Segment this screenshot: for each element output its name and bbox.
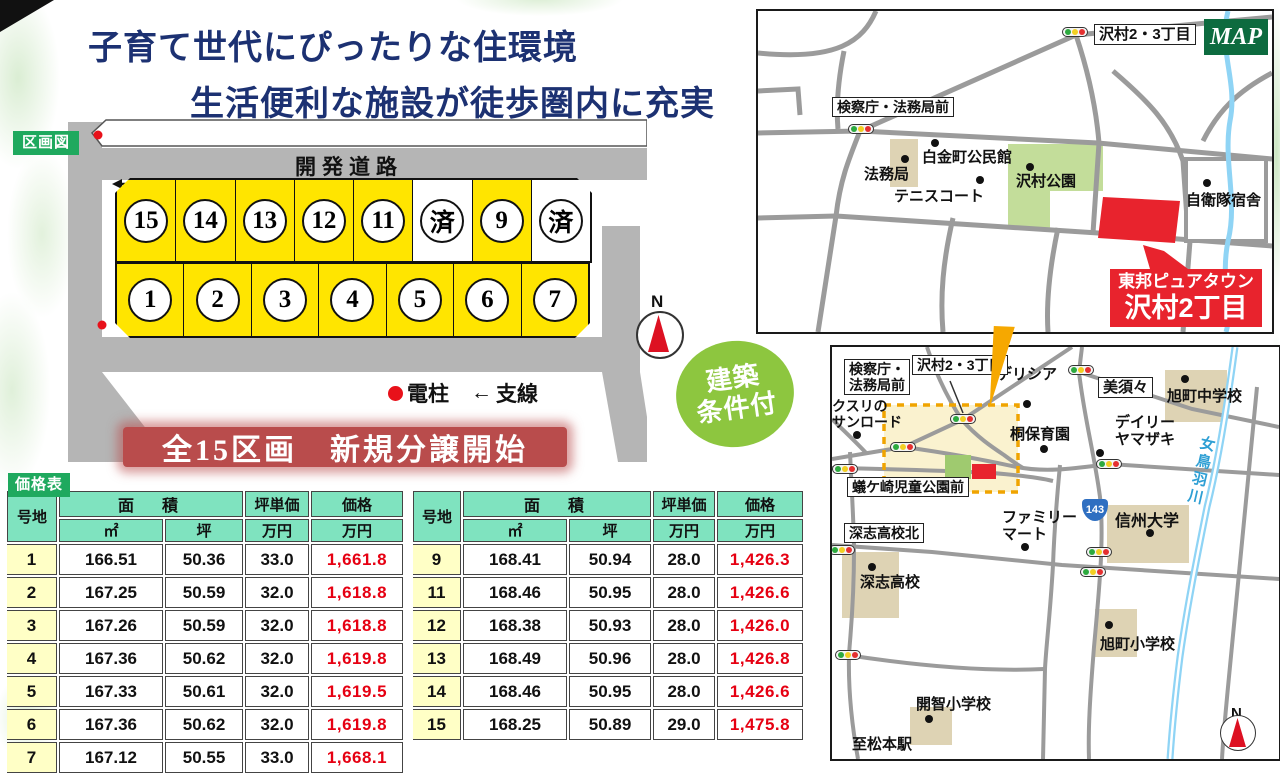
cell-price: 1,668.1: [311, 742, 403, 773]
header-man-yen: 万円: [717, 519, 803, 542]
lot-row-bottom: 1 2 3 4 5 6 7: [115, 262, 590, 338]
lot-number: 13: [243, 199, 287, 243]
cell-tsubo: 50.96: [569, 643, 651, 674]
header-tsubo: 坪: [165, 519, 243, 542]
cell-sqm: 168.25: [463, 709, 567, 740]
sale-banner-text: 全15区画 新規分譲開始: [162, 425, 528, 469]
cell-lot: 2: [7, 577, 57, 608]
header-row-2: ㎡ 坪 万円 万円: [413, 519, 803, 542]
cell-lot: 1: [7, 544, 57, 575]
cell-lot: 7: [7, 742, 57, 773]
cell-sqm: 167.25: [59, 577, 163, 608]
cell-lot: 15: [413, 709, 461, 740]
plot-compass-n: N: [651, 292, 663, 312]
price-row: 3167.2650.5932.01,618.8: [7, 610, 403, 641]
cell-tsubo: 50.36: [165, 544, 243, 575]
lot-number: 6: [465, 278, 509, 322]
lot-11: 11: [353, 180, 412, 261]
traffic-light-icon: [1068, 365, 1094, 375]
map-badge: MAP: [1204, 19, 1268, 55]
cell-tsubo: 50.93: [569, 610, 651, 641]
cell-unit: 32.0: [245, 709, 309, 740]
poi-label-kiri: 桐保育園: [1010, 427, 1070, 444]
lot-14: 14: [175, 180, 234, 261]
cell-sqm: 167.36: [59, 643, 163, 674]
poi-label-family-l1: ファミリー: [1002, 510, 1077, 527]
poi-dot: [1203, 179, 1211, 187]
site-banner-line1: 東邦ピュアタウン: [1118, 272, 1254, 292]
lot-12: 12: [294, 180, 353, 261]
cell-unit: 32.0: [245, 643, 309, 674]
poi-dot: [976, 176, 984, 184]
poi-label-daily-l1: デイリー: [1115, 415, 1175, 432]
utility-pole-dot: [94, 131, 103, 140]
poi-dot: [853, 431, 861, 439]
road-right: [602, 226, 640, 372]
lot-1: 1: [117, 264, 183, 336]
price-row: 9168.4150.9428.01,426.3: [413, 544, 803, 575]
lot-5: 5: [386, 264, 453, 336]
plot-map-badge: 区画図: [13, 131, 79, 155]
traffic-light-icon: [835, 650, 861, 660]
signal-label-kensatsu: 検察庁・法務局前: [832, 97, 954, 117]
header-unit-price: 坪単価: [653, 491, 715, 517]
cell-price: 1,426.3: [717, 544, 803, 575]
cell-unit: 28.0: [653, 676, 715, 707]
cell-price: 1,426.6: [717, 577, 803, 608]
poi-label-homukyoku: 法務局: [864, 167, 909, 184]
cell-lot: 9: [413, 544, 461, 575]
poi-label-park: 沢村公園: [1016, 174, 1076, 191]
header-sqm: ㎡: [463, 519, 567, 542]
cell-lot: 3: [7, 610, 57, 641]
box-label-misuzu: 美須々: [1098, 377, 1153, 398]
cell-price: 1,475.8: [717, 709, 803, 740]
road-bottom-right: [602, 372, 647, 462]
cell-price: 1,426.6: [717, 676, 803, 707]
box-label-arigasaki: 蟻ケ崎児童公園前: [847, 477, 969, 497]
cell-lot: 4: [7, 643, 57, 674]
lot-4: 4: [318, 264, 385, 336]
cell-lot: 13: [413, 643, 461, 674]
header-man-yen: 万円: [245, 519, 309, 542]
poi-dot: [901, 155, 909, 163]
utility-pole-dot: [98, 321, 107, 330]
cell-unit: 28.0: [653, 577, 715, 608]
poi-dot: [1023, 400, 1031, 408]
poi-dot: [1040, 445, 1048, 453]
cell-tsubo: 50.95: [569, 577, 651, 608]
price-row: 11168.4650.9528.01,426.6: [413, 577, 803, 608]
lot-sold-mark: 済: [420, 199, 464, 243]
cell-price: 1,661.8: [311, 544, 403, 575]
cell-unit: 33.0: [245, 742, 309, 773]
cell-unit: 28.0: [653, 610, 715, 641]
traffic-light-icon: [1062, 27, 1088, 37]
cell-lot: 6: [7, 709, 57, 740]
lot-number: 2: [196, 278, 240, 322]
cell-tsubo: 50.61: [165, 676, 243, 707]
poi-label-daily-l2: ヤマザキ: [1115, 432, 1175, 449]
legend-wire-label: 支線: [496, 378, 538, 408]
site-pointer: [1143, 245, 1188, 269]
lot-9: 9: [472, 180, 531, 261]
page-title-line1: 子育て世代にぴったりな住環境: [88, 20, 578, 69]
poi-label-matsumoto: 至松本駅: [852, 737, 912, 754]
header-area: 面 積: [59, 491, 243, 517]
lot-sold-mark: 済: [539, 199, 583, 243]
lot-number: 15: [124, 199, 168, 243]
cell-price: 1,618.8: [311, 577, 403, 608]
lot-number: 3: [263, 278, 307, 322]
lot-number: 5: [398, 278, 442, 322]
lot-number: 7: [533, 278, 577, 322]
poi-label-asahi-es: 旭町小学校: [1100, 637, 1175, 654]
poi-label-tennis: テニスコート: [894, 189, 984, 206]
cell-tsubo: 50.55: [165, 742, 243, 773]
wide-area-map: MAP 沢村2・3丁目 検察庁・法務局前 法務局 白金町公民館 テニスコート 沢…: [756, 9, 1274, 334]
cell-sqm: 168.41: [463, 544, 567, 575]
price-row: 4167.3650.6232.01,619.8: [7, 643, 403, 674]
price-table-right: 号地 面 積 坪単価 価格 ㎡ 坪 万円 万円 9168.4150.9428.0…: [411, 489, 805, 742]
box-label-fukashi-kita: 深志高校北: [844, 523, 924, 543]
zone-site-area: [972, 464, 996, 479]
poi-label-jieitai: 自衛隊宿舎: [1186, 193, 1261, 210]
cell-tsubo: 50.94: [569, 544, 651, 575]
cell-unit: 33.0: [245, 544, 309, 575]
cell-price: 1,619.8: [311, 643, 403, 674]
lot-row-top: 15 14 13 12 11 済 9 済: [115, 178, 592, 263]
lot-8-sold: 済: [531, 180, 590, 261]
cell-sqm: 166.51: [59, 544, 163, 575]
sale-banner: 全15区画 新規分譲開始: [123, 427, 567, 467]
site-banner: 東邦ピュアタウン 沢村2丁目: [1110, 269, 1262, 327]
cell-sqm: 167.36: [59, 709, 163, 740]
header-sqm: ㎡: [59, 519, 163, 542]
zone-green-area: [945, 455, 971, 479]
corner-triangle: [0, 0, 54, 32]
poi-label-kominkan: 白金町公民館: [922, 150, 1012, 167]
poi-label-kusuri-l2: サンロード: [832, 415, 902, 431]
price-row: 7167.1250.5533.01,668.1: [7, 742, 403, 773]
cell-sqm: 167.33: [59, 676, 163, 707]
header-price: 価格: [717, 491, 803, 517]
cell-unit: 32.0: [245, 676, 309, 707]
cell-lot: 12: [413, 610, 461, 641]
poi-label-kusuri: クスリの サンロード: [832, 399, 902, 430]
lot-number: 11: [361, 199, 405, 243]
condition-badge: 建築 条件付: [669, 333, 801, 454]
cell-sqm: 167.12: [59, 742, 163, 773]
header-man-yen: 万円: [653, 519, 715, 542]
poi-dot: [1026, 163, 1034, 171]
lot-number: 4: [330, 278, 374, 322]
cell-sqm: 168.46: [463, 577, 567, 608]
signal-label-sawamura: 沢村2・3丁目: [1094, 24, 1196, 45]
plot-map: 開発道路 15 14 13 12 11 済 9 済 1 2 3 4 5 6 7: [62, 118, 647, 462]
box-label-kensatsu-l1: 検察庁・: [849, 361, 905, 377]
header-lot: 号地: [413, 491, 461, 542]
poi-dot: [1096, 449, 1104, 457]
cell-unit: 28.0: [653, 643, 715, 674]
cell-lot: 5: [7, 676, 57, 707]
cell-price: 1,426.8: [717, 643, 803, 674]
cell-price: 1,618.8: [311, 610, 403, 641]
traffic-light-icon: [1080, 567, 1106, 577]
lot-13: 13: [235, 180, 294, 261]
cell-price: 1,619.8: [311, 709, 403, 740]
traffic-light-icon: [832, 464, 858, 474]
poi-label-kaichi: 開智小学校: [916, 697, 991, 714]
cell-tsubo: 50.89: [569, 709, 651, 740]
traffic-light-icon: [890, 442, 916, 452]
cell-tsubo: 50.59: [165, 610, 243, 641]
pole-dot-icon: [388, 386, 403, 401]
poi-dot: [1105, 621, 1113, 629]
road-bottom: [68, 337, 640, 372]
lot-number: 1: [128, 278, 172, 322]
price-row: 15168.2550.8929.01,475.8: [413, 709, 803, 740]
poi-label-shinshu: 信州大学: [1115, 513, 1179, 531]
development-road-label: 開発道路: [295, 151, 403, 181]
price-row: 12168.3850.9328.01,426.0: [413, 610, 803, 641]
traffic-light-icon: [1086, 547, 1112, 557]
cell-price: 1,619.5: [311, 676, 403, 707]
lot-number: 14: [183, 199, 227, 243]
price-table-left: 号地 面 積 坪単価 価格 ㎡ 坪 万円 万円 1166.5150.3633.0…: [5, 489, 405, 775]
poi-label-fukashi: 深志高校: [860, 575, 920, 592]
cell-tsubo: 50.95: [569, 676, 651, 707]
lot-10-sold: 済: [412, 180, 471, 261]
cell-tsubo: 50.59: [165, 577, 243, 608]
site-banner-line2: 沢村2丁目: [1124, 293, 1247, 324]
header-lot: 号地: [7, 491, 57, 542]
cell-lot: 14: [413, 676, 461, 707]
cell-tsubo: 50.62: [165, 709, 243, 740]
box-label-kensatsu-l2: 法務局前: [849, 377, 905, 393]
cell-sqm: 168.38: [463, 610, 567, 641]
cell-unit: 32.0: [245, 610, 309, 641]
header-price: 価格: [311, 491, 403, 517]
price-table-badge: 価格表: [8, 473, 70, 497]
header-man-yen: 万円: [311, 519, 403, 542]
poi-dot: [925, 715, 933, 723]
cell-lot: 11: [413, 577, 461, 608]
lot-6: 6: [453, 264, 520, 336]
cell-sqm: 167.26: [59, 610, 163, 641]
cell-tsubo: 50.62: [165, 643, 243, 674]
lot-2: 2: [183, 264, 250, 336]
price-row: 14168.4650.9528.01,426.6: [413, 676, 803, 707]
poi-label-kusuri-l1: クスリの: [832, 399, 902, 415]
page-title-line2: 生活便利な施設が徒歩圏内に充実: [190, 76, 715, 125]
price-row: 2167.2550.5932.01,618.8: [7, 577, 403, 608]
header-area: 面 積: [463, 491, 651, 517]
legend-wire-arrow-icon: ←: [471, 381, 492, 405]
traffic-light-icon: [830, 545, 855, 555]
traffic-light-icon: [950, 414, 976, 424]
map-legend: 電柱 ← 支線: [388, 378, 538, 408]
cell-unit: 29.0: [653, 709, 715, 740]
detail-map: 検察庁・ 法務局前 沢村2・3丁目 美須々 蟻ケ崎児童公園前 深志高校北 デリシ…: [830, 345, 1280, 761]
cell-unit: 32.0: [245, 577, 309, 608]
lot-number: 12: [302, 199, 346, 243]
flyer-root: { "header": { "title_line1": "子育て世代にぴったり…: [0, 0, 1280, 762]
poi-label-family: ファミリー マート: [1002, 510, 1077, 544]
poi-label-family-l2: マート: [1002, 527, 1077, 544]
header-row-2: ㎡ 坪 万円 万円: [7, 519, 403, 542]
poi-label-asahi-jhs: 旭町中学校: [1167, 389, 1242, 406]
traffic-light-icon: [848, 124, 874, 134]
lot-15: 15: [117, 180, 175, 261]
cell-price: 1,426.0: [717, 610, 803, 641]
poi-dot: [931, 139, 939, 147]
price-row: 1166.5150.3633.01,661.8: [7, 544, 403, 575]
traffic-light-icon: [1096, 459, 1122, 469]
poi-dot: [1021, 543, 1029, 551]
price-row: 13168.4950.9628.01,426.8: [413, 643, 803, 674]
legend-pole-label: 電柱: [407, 378, 449, 408]
header-unit-price: 坪単価: [245, 491, 309, 517]
lot-3: 3: [251, 264, 318, 336]
poi-label-daily: デイリー ヤマザキ: [1115, 415, 1175, 449]
poi-dot: [868, 563, 876, 571]
price-row: 5167.3350.6132.01,619.5: [7, 676, 403, 707]
poi-dot: [1181, 375, 1189, 383]
cell-sqm: 168.46: [463, 676, 567, 707]
header-tsubo: 坪: [569, 519, 651, 542]
cell-sqm: 168.49: [463, 643, 567, 674]
lot-7: 7: [521, 264, 588, 336]
cell-unit: 28.0: [653, 544, 715, 575]
box-label-kensatsu: 検察庁・ 法務局前: [844, 359, 910, 395]
header-row-1: 号地 面 積 坪単価 価格: [413, 491, 803, 517]
lot-number: 9: [480, 199, 524, 243]
price-row: 6167.3650.6232.01,619.8: [7, 709, 403, 740]
site-area: [1098, 197, 1180, 243]
